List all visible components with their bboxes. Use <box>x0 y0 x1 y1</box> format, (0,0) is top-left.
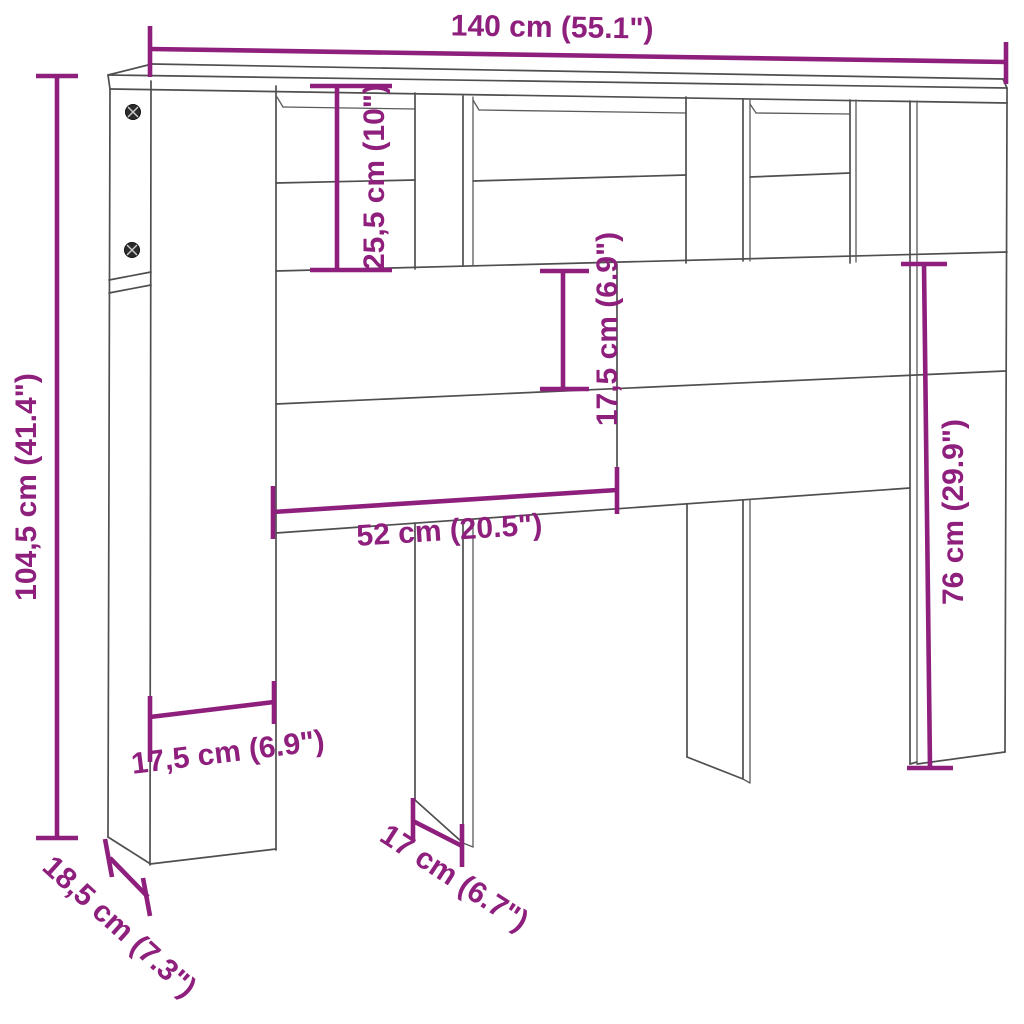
screw-icon <box>125 243 140 258</box>
shelf-divider <box>686 97 750 263</box>
right-partition <box>910 101 917 764</box>
shelf-divider <box>415 93 473 269</box>
dim-total-width: 140 cm (55.1") <box>150 9 1006 84</box>
dim-middle-panel-height: 17,5 cm (6.9") <box>540 232 624 426</box>
middle-leg-left <box>415 519 473 847</box>
dim-total-height-label: 104,5 cm (41.4") <box>10 373 43 601</box>
dim-opening-width: 52 cm (20.5") <box>273 467 617 553</box>
dim-total-width-label: 140 cm (55.1") <box>451 9 654 45</box>
dim-pillar-width-label: 17,5 cm (6.9") <box>129 724 326 780</box>
dim-right-section-height-label: 76 cm (29.9") <box>937 419 970 605</box>
dim-top-shelf-height-label: 25,5 cm (10") <box>358 84 391 270</box>
headboard-dimension-drawing: 140 cm (55.1") 104,5 cm (41.4") 25,5 cm … <box>0 0 1024 1024</box>
back-panel <box>276 264 1005 533</box>
dim-pillar-width: 17,5 cm (6.9") <box>129 681 326 781</box>
screw-icon <box>126 105 141 120</box>
dim-opening-width-label: 52 cm (20.5") <box>356 508 544 553</box>
dim-top-shelf-height: 25,5 cm (10") <box>310 84 392 270</box>
dimension-diagram: 140 cm (55.1") 104,5 cm (41.4") 25,5 cm … <box>0 0 1024 1024</box>
dim-side-depth-label: 18,5 cm (7.3") <box>36 850 202 1005</box>
dim-middle-panel-height-label: 17,5 cm (6.9") <box>591 232 624 426</box>
top-board <box>108 64 1007 103</box>
dim-leg-depth: 17 cm (6.7") <box>374 798 534 938</box>
dim-total-height: 104,5 cm (41.4") <box>10 76 78 838</box>
middle-leg-right <box>687 500 750 783</box>
dim-side-depth: 18,5 cm (7.3") <box>36 839 202 1004</box>
shelf-divider <box>850 100 856 263</box>
dim-right-section-height: 76 cm (29.9") <box>901 264 970 768</box>
